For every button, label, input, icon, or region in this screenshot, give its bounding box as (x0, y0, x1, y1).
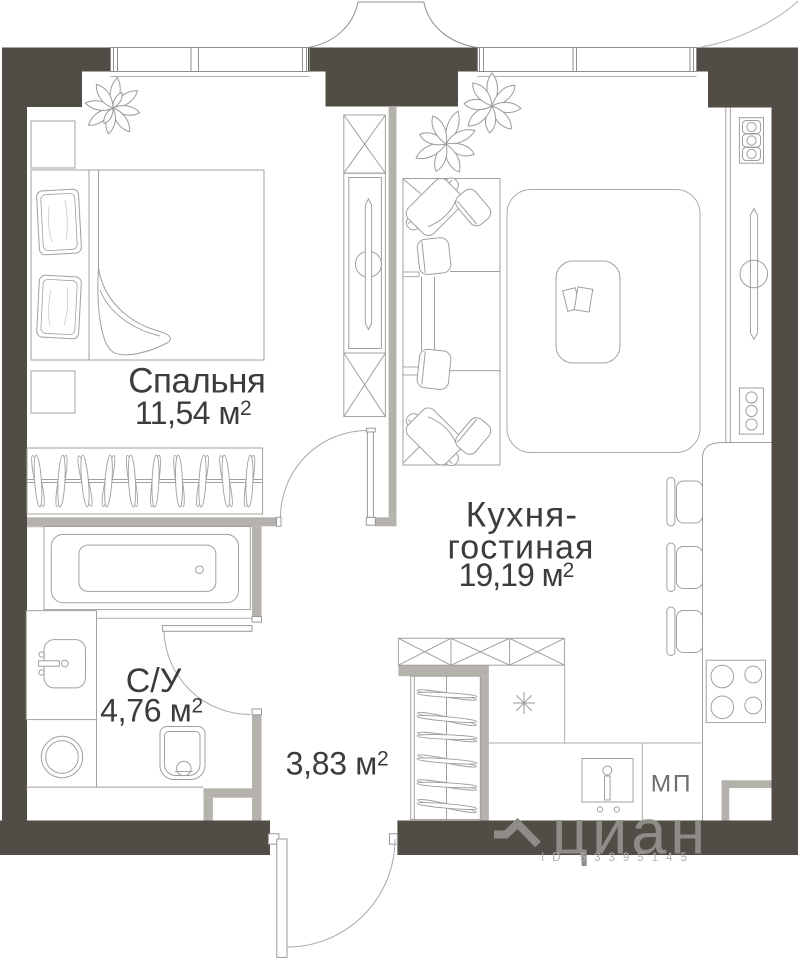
svg-text:ID 53395145: ID 53395145 (541, 852, 695, 864)
svg-text:МП: МП (651, 770, 693, 797)
svg-text:3,83 м2: 3,83 м2 (286, 746, 389, 782)
svg-text:11,54 м2: 11,54 м2 (135, 395, 251, 431)
svg-text:4,76 м2: 4,76 м2 (100, 693, 203, 729)
svg-text:19,19 м2: 19,19 м2 (459, 557, 574, 593)
